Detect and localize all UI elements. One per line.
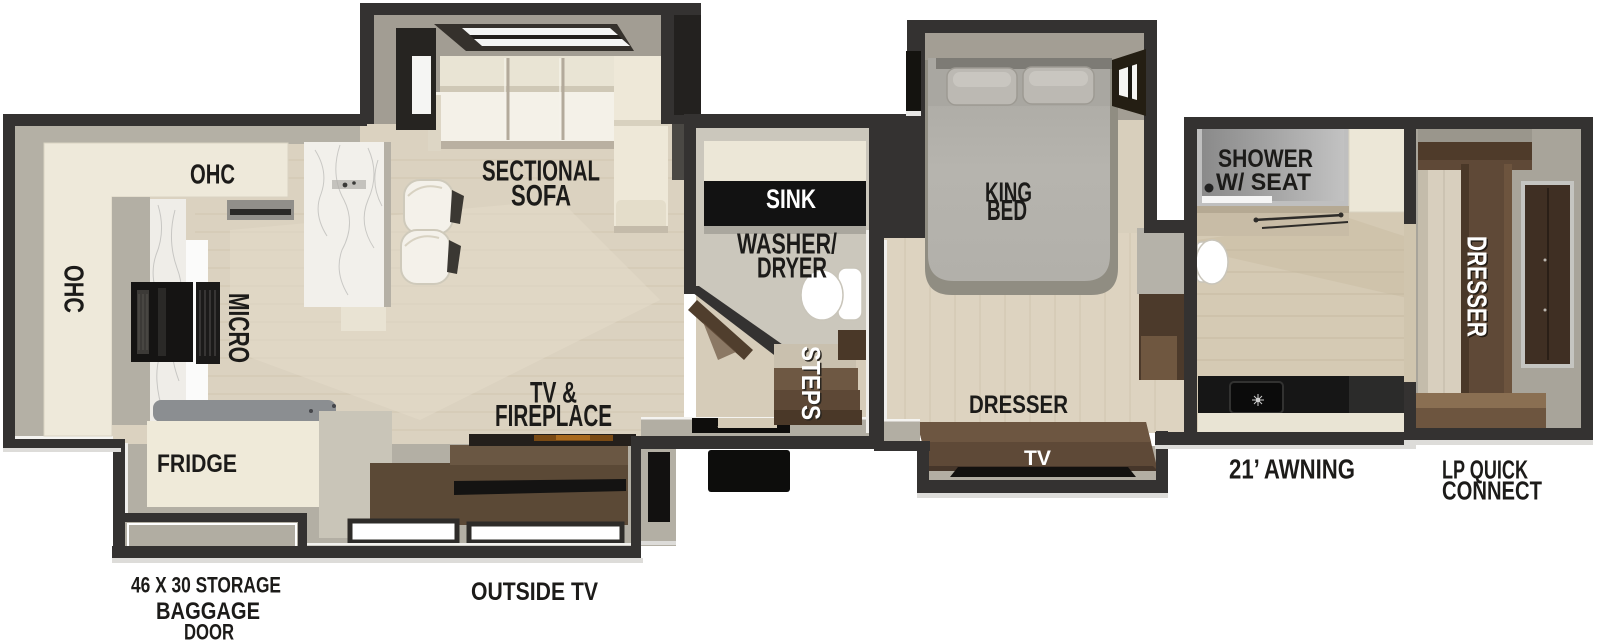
svg-text:TV: TV	[1024, 447, 1051, 470]
svg-text:DRESSER: DRESSER	[1462, 236, 1493, 337]
svg-text:DRESSER: DRESSER	[969, 391, 1068, 419]
svg-text:STEPS: STEPS	[796, 346, 826, 420]
svg-text:DOOR: DOOR	[184, 620, 234, 644]
svg-text:OUTSIDE TV: OUTSIDE TV	[471, 578, 598, 606]
svg-text:DRYER: DRYER	[757, 253, 827, 285]
svg-text:SOFA: SOFA	[511, 180, 571, 213]
svg-text:SINK: SINK	[766, 184, 816, 214]
svg-text:BED: BED	[987, 195, 1027, 227]
svg-text:FRIDGE: FRIDGE	[157, 450, 237, 478]
svg-text:CONNECT: CONNECT	[1442, 476, 1542, 506]
svg-text:21’ AWNING: 21’ AWNING	[1229, 454, 1355, 485]
svg-text:46 X 30 STORAGE: 46 X 30 STORAGE	[131, 573, 281, 598]
svg-text:FIREPLACE: FIREPLACE	[495, 398, 612, 433]
svg-text:W/ SEAT: W/ SEAT	[1216, 169, 1311, 196]
svg-text:MICRO: MICRO	[222, 293, 254, 363]
svg-text:OHC: OHC	[59, 265, 90, 313]
svg-text:OHC: OHC	[190, 159, 235, 190]
